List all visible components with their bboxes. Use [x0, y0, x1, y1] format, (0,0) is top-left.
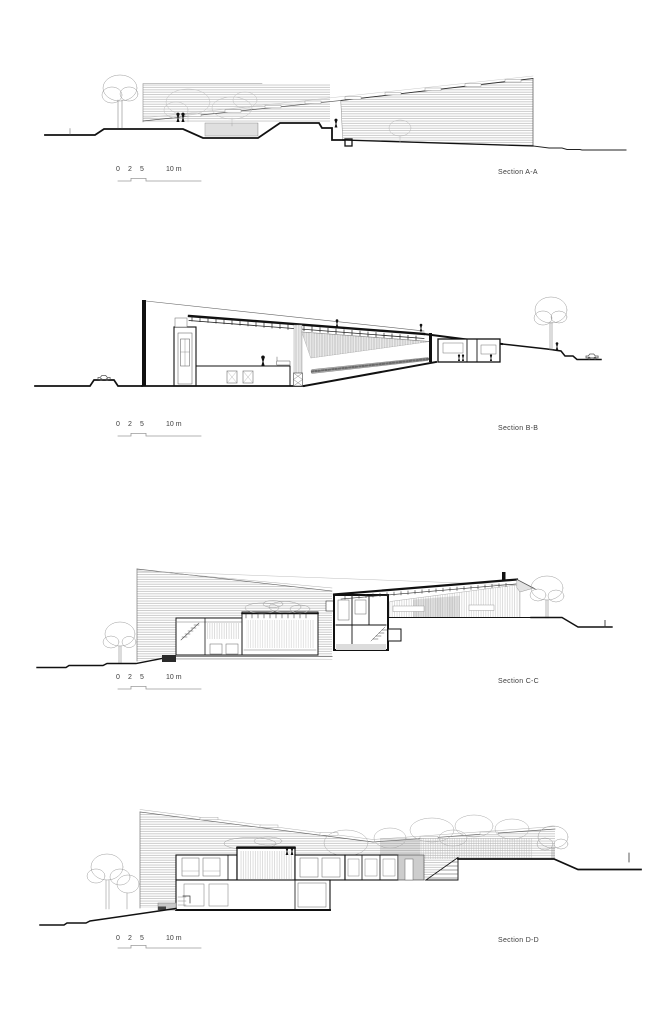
- person-figure: [334, 119, 337, 128]
- scale-bar-line: [118, 686, 201, 689]
- section-label: Section D-D: [498, 937, 539, 944]
- scale-tick-label: 5: [140, 674, 144, 681]
- scale-tick-label: 5: [140, 421, 144, 428]
- scale-tick-label: 2: [128, 674, 132, 681]
- tree-icon: [102, 75, 138, 128]
- scale-tick-label: 10 m: [166, 166, 182, 173]
- section-wall: [142, 300, 146, 386]
- scale-tick-label: 0: [116, 166, 120, 173]
- scale-tick-label: 2: [128, 421, 132, 428]
- person-figure: [556, 342, 559, 350]
- scale-tick-label: 10 m: [166, 935, 182, 942]
- furniture: [277, 357, 290, 365]
- ground-line: [531, 618, 612, 628]
- auditorium-wedge: [302, 332, 430, 358]
- scale-tick-label: 5: [140, 166, 144, 173]
- tree-icon: [103, 622, 136, 663]
- tree-icon: [530, 576, 564, 618]
- sunken-glazing-band: [205, 123, 258, 136]
- scale-tick-label: 0: [116, 421, 120, 428]
- stair-core: [334, 595, 388, 650]
- drawing-sheet: 0 2 5 10 m Section A-A 0 2 5 10 m Sectio…: [0, 0, 663, 1024]
- chimney: [502, 572, 506, 580]
- tree-icon: [87, 854, 139, 909]
- person-figure: [261, 355, 265, 366]
- section-label: Section B-B: [498, 425, 538, 432]
- section-b-drawing: [35, 297, 601, 436]
- scale-tick-label: 2: [128, 935, 132, 942]
- ground-line: [40, 909, 176, 926]
- scale-bar-line: [118, 178, 201, 181]
- ground-line: [45, 123, 345, 140]
- scale-tick-label: 2: [128, 166, 132, 173]
- tree-icon: [534, 297, 567, 350]
- scale-tick-label: 10 m: [166, 421, 182, 428]
- person-figure: [336, 319, 339, 327]
- scale-bar-line: [118, 945, 201, 948]
- scale-tick-label: 10 m: [166, 674, 182, 681]
- ground-line: [35, 380, 142, 386]
- scale-bar: 0 2 5 10 m: [116, 166, 226, 176]
- scale-bar: 0 2 5 10 m: [116, 935, 226, 945]
- car-icon: [586, 354, 598, 359]
- roof-truss: [189, 316, 424, 334]
- lower-floor: [176, 880, 330, 910]
- scale-bar: 0 2 5 10 m: [116, 421, 226, 431]
- scale-tick-label: 0: [116, 674, 120, 681]
- scale-tick-label: 5: [140, 935, 144, 942]
- ground-line: [458, 859, 641, 870]
- section-d-drawing: [40, 810, 641, 949]
- drawing-canvas: [0, 0, 663, 1024]
- section-label: Section C-C: [498, 678, 539, 685]
- scale-bar-line: [118, 433, 201, 436]
- scale-bar: 0 2 5 10 m: [116, 674, 226, 684]
- scale-tick-label: 0: [116, 935, 120, 942]
- section-c-drawing: [37, 569, 612, 689]
- section-label: Section A-A: [498, 169, 538, 176]
